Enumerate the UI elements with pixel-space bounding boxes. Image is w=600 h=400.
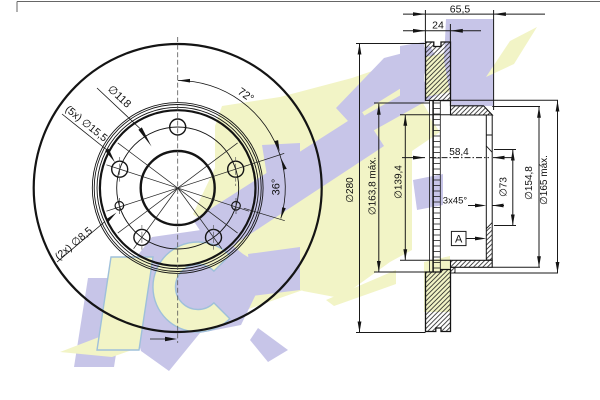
svg-text:∅118: ∅118: [105, 83, 133, 110]
svg-text:∅163,8 máx.: ∅163,8 máx.: [368, 157, 379, 215]
svg-text:(5x) ∅15,5: (5x) ∅15,5: [63, 103, 110, 144]
svg-text:∅73: ∅73: [499, 177, 510, 197]
svg-text:36°: 36°: [270, 179, 282, 196]
svg-text:∅154,8: ∅154,8: [524, 166, 535, 200]
svg-text:3x45°: 3x45°: [443, 196, 468, 207]
svg-text:A: A: [455, 234, 463, 246]
svg-text:∅139,4: ∅139,4: [394, 165, 405, 199]
svg-text:(2x) ∅8,5: (2x) ∅8,5: [53, 225, 95, 263]
svg-text:∅165 máx.: ∅165 máx.: [539, 155, 550, 205]
svg-text:58,4: 58,4: [449, 147, 469, 158]
svg-text:65,5: 65,5: [450, 4, 471, 16]
svg-text:24: 24: [432, 20, 444, 32]
svg-text:∅280: ∅280: [345, 177, 356, 203]
